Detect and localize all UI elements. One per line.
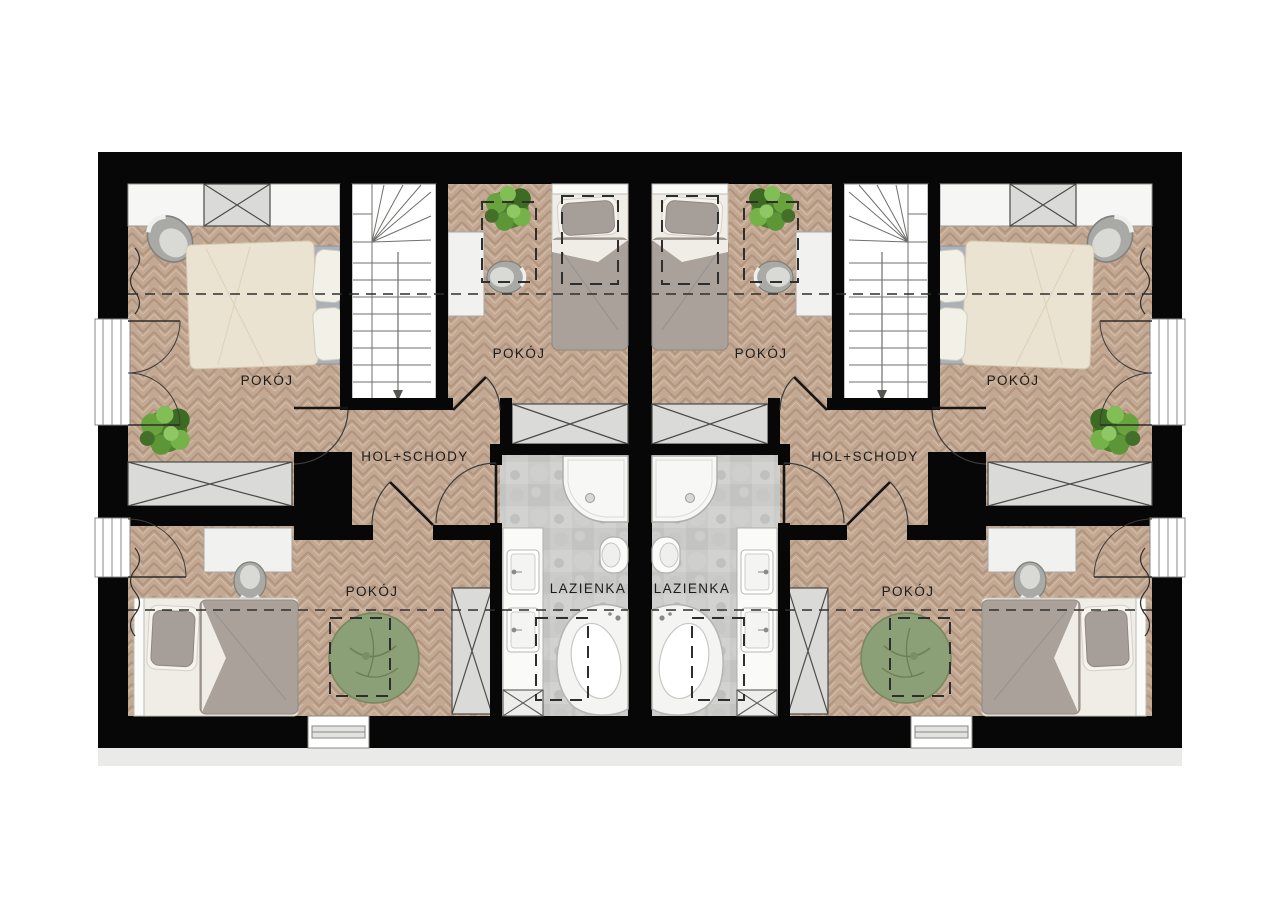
- floor-plan-canvas: POKÓJ POKÓJ POKÓJ HOL+SCHODY LAZIENKA PO…: [0, 0, 1280, 905]
- unit-left: [95, 184, 628, 748]
- outer-wall-right: [1152, 152, 1182, 748]
- plan-shadow: [98, 748, 1182, 766]
- room-label-bathroom-right: LAZIENKA: [654, 581, 730, 596]
- room-label-bedroom-large-left: POKÓJ: [241, 373, 294, 388]
- room-label-bathroom-left: LAZIENKA: [550, 581, 626, 596]
- party-wall: [628, 152, 652, 748]
- room-label-bedroom-small-right: POKÓJ: [735, 346, 788, 361]
- room-label-hall-right: HOL+SCHODY: [811, 449, 918, 464]
- room-label-hall-left: HOL+SCHODY: [361, 449, 468, 464]
- room-label-bedroom-bottom-left: POKÓJ: [346, 584, 399, 599]
- floor-plan-page: POKÓJ POKÓJ POKÓJ HOL+SCHODY LAZIENKA PO…: [0, 0, 1280, 905]
- outer-wall-left: [98, 152, 128, 748]
- room-label-bedroom-large-right: POKÓJ: [987, 373, 1040, 388]
- room-label-bedroom-small-left: POKÓJ: [493, 346, 546, 361]
- unit-right-mirrored: [652, 184, 1185, 748]
- room-label-bedroom-bottom-right: POKÓJ: [882, 584, 935, 599]
